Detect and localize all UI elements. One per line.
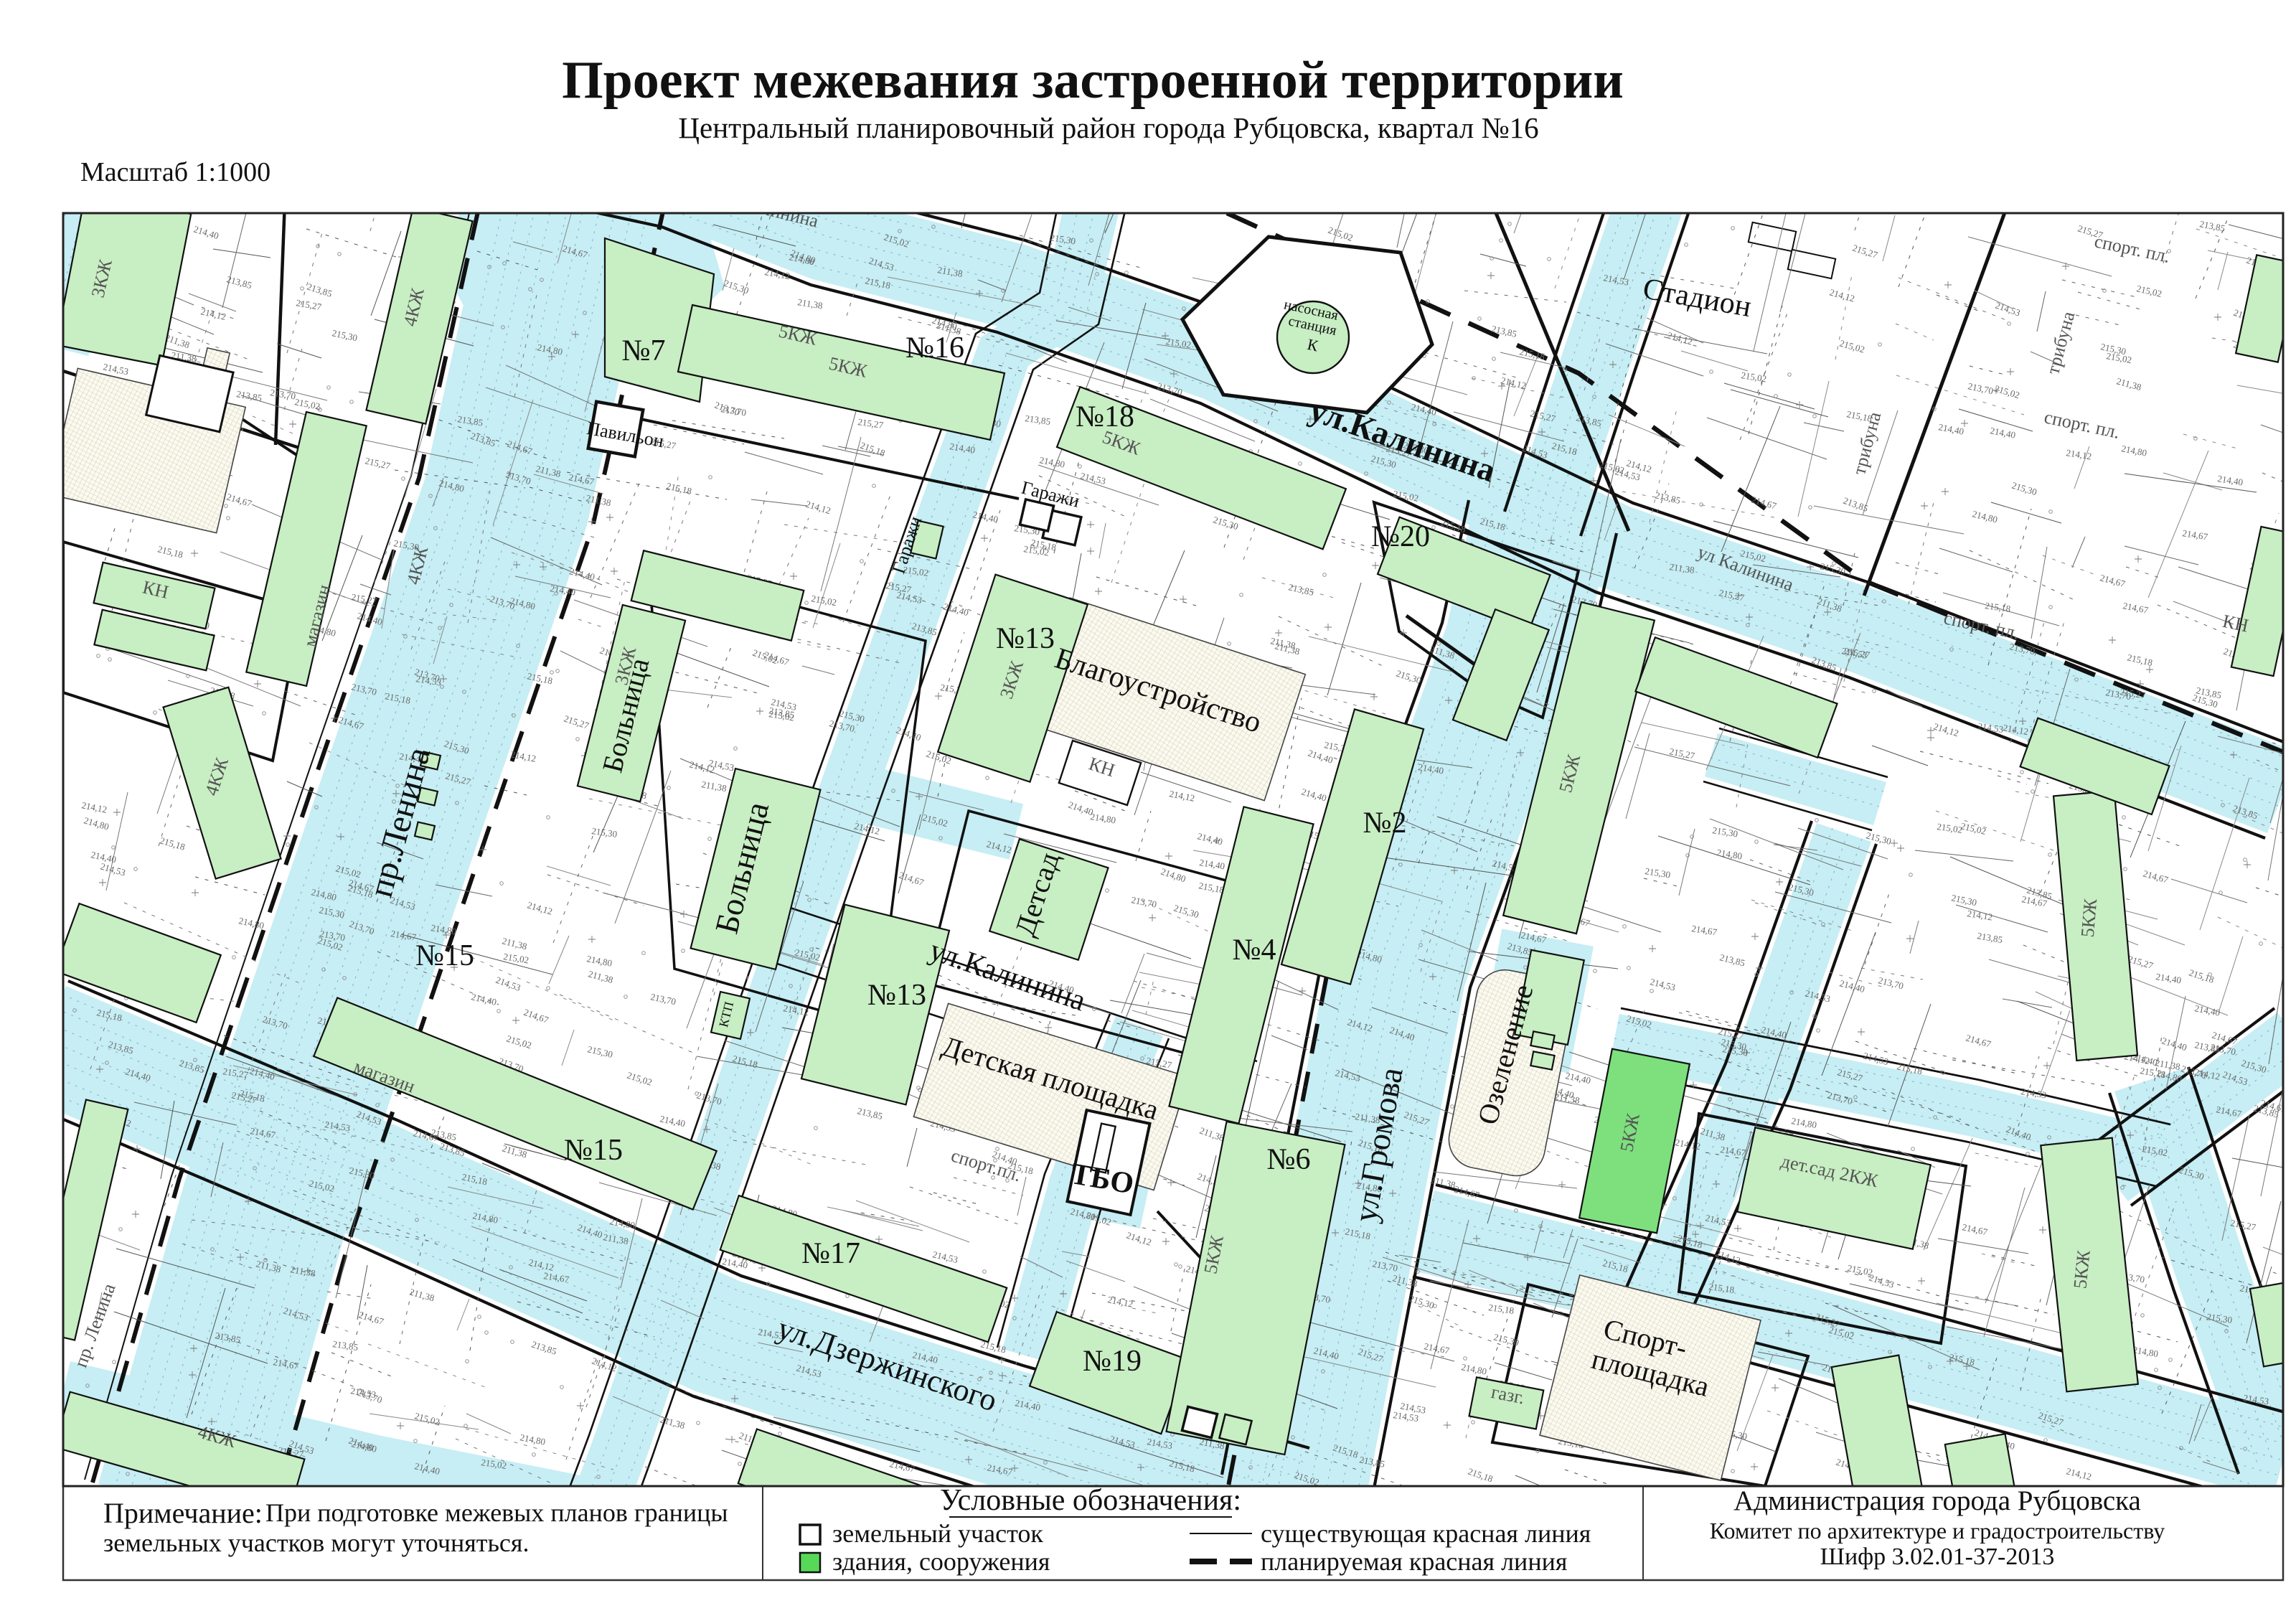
- svg-text:5КЖ: 5КЖ: [2069, 1249, 2094, 1289]
- svg-text:№18: №18: [1076, 400, 1134, 433]
- svg-text:№19: №19: [1083, 1345, 1142, 1378]
- svg-text:№4: №4: [1232, 934, 1276, 967]
- svg-text:№15: №15: [564, 1134, 623, 1167]
- svg-text:При подготовке межевых планов: При подготовке межевых планов границы: [265, 1498, 728, 1527]
- svg-text:№16: №16: [905, 332, 964, 365]
- svg-text:Шифр 3.02.01-37-2013: Шифр 3.02.01-37-2013: [1820, 1544, 2055, 1570]
- svg-text:существующая красная линия: существующая красная линия: [1261, 1519, 1591, 1548]
- svg-text:Условные обозначения:: Условные обозначения:: [940, 1484, 1241, 1517]
- svg-text:здания, сооружения: здания, сооружения: [832, 1547, 1050, 1576]
- svg-text:Администрация города Рубцовска: Администрация города Рубцовска: [1733, 1485, 2141, 1516]
- svg-text:Масштаб 1:1000: Масштаб 1:1000: [80, 157, 270, 187]
- svg-text:земельный участок: земельный участок: [832, 1519, 1043, 1548]
- svg-text:Комитет по архитектуре и гра: Комитет по архитектуре и градостроительс…: [1710, 1518, 2165, 1544]
- svg-text:№7: №7: [621, 334, 665, 367]
- svg-text:Примечание:: Примечание:: [103, 1497, 263, 1529]
- svg-text:№17: №17: [801, 1237, 860, 1270]
- svg-text:земельных участков могут уточн: земельных участков могут уточняться.: [103, 1528, 529, 1557]
- svg-text:№13: №13: [867, 979, 926, 1012]
- svg-text:планируемая красная линия: планируемая красная линия: [1261, 1547, 1567, 1576]
- svg-text:№20: №20: [1371, 520, 1430, 553]
- svg-text:5КЖ: 5КЖ: [2077, 898, 2102, 939]
- svg-text:Проект межевания застроенной т: Проект межевания застроенной территории: [562, 51, 1624, 110]
- svg-text:№6: №6: [1266, 1143, 1310, 1176]
- svg-text:Центральный планировочный райо: Центральный планировочный район города Р…: [678, 111, 1538, 144]
- svg-text:№13: №13: [996, 622, 1055, 655]
- svg-text:№2: №2: [1363, 807, 1406, 840]
- svg-text:№15: №15: [415, 939, 474, 972]
